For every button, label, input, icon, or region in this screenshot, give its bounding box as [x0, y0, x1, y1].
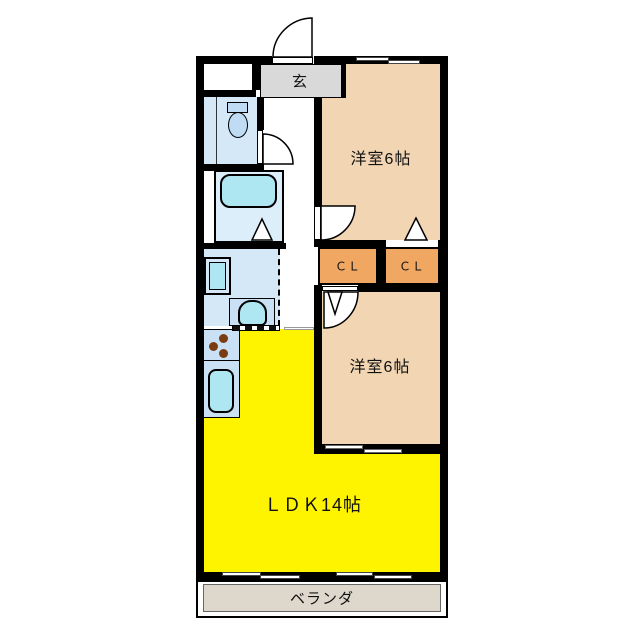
window-bottom-right-icon	[336, 572, 373, 576]
wall-toilet-bottom	[196, 164, 264, 171]
toilet-icon	[228, 112, 248, 138]
entrance-door-swing-icon	[273, 18, 312, 57]
washbasin-icon	[238, 300, 267, 326]
storage-nook	[204, 64, 252, 90]
toilet-door-swing-icon	[263, 134, 293, 164]
sliding-door-icon	[325, 445, 363, 449]
genkan-label: 玄	[292, 71, 308, 92]
closet-left-label: ＣＬ	[335, 258, 361, 275]
sliding-door-icon	[364, 449, 402, 453]
toilet-door-leaf	[257, 130, 263, 164]
washer-pan-icon	[209, 262, 226, 290]
western-room-top-label: 洋室6帖	[351, 145, 412, 169]
kitchen-sink-icon	[208, 369, 234, 413]
hall-threshold-line	[284, 327, 314, 330]
wall-washroom-top	[196, 243, 286, 249]
closet-right-door-opening	[386, 240, 438, 247]
floor-plan: 玄 洋室6帖 ＣＬ ＣＬ 洋室6帖 ＬＤＫ14帖 ベランダ	[0, 0, 640, 640]
wall-hall-room-top	[314, 98, 322, 206]
washroom-accordion-door-icon	[232, 325, 280, 331]
room-top-door-leaf	[314, 206, 321, 240]
wall-genkan-right	[342, 64, 346, 98]
wall-closet-divider	[378, 247, 384, 285]
wall-toilet-right	[257, 97, 264, 130]
window-bottom-left-icon	[222, 572, 261, 576]
wall-room-bottom-left	[314, 292, 322, 454]
wall-storage-right	[252, 64, 260, 90]
entrance-door-leaf	[272, 57, 313, 64]
veranda-label: ベランダ	[290, 588, 354, 609]
wall-left	[196, 56, 204, 580]
stove-burner-icon	[219, 349, 228, 358]
toilet-partition-line	[216, 97, 217, 164]
window-bottom-right-icon	[374, 575, 412, 579]
western-room-bottom-label: 洋室6帖	[350, 353, 411, 377]
wall-storage-bottom	[196, 90, 256, 97]
wall-right	[440, 56, 448, 580]
kitchen-divider-line	[204, 360, 240, 361]
room-western-top	[322, 98, 440, 242]
stove-burner-icon	[219, 334, 228, 343]
bathtub-icon	[220, 174, 277, 208]
washroom-accordion-door-icon	[278, 249, 280, 326]
closet-right-label: ＣＬ	[399, 258, 425, 275]
window-top-icon	[388, 60, 420, 64]
window-top-icon	[356, 57, 389, 61]
stove-burner-icon	[209, 342, 218, 351]
room-bottom-door-leaf	[322, 286, 358, 291]
window-bottom-left-icon	[260, 575, 300, 579]
ldk-label: ＬＤＫ14帖	[264, 491, 362, 517]
